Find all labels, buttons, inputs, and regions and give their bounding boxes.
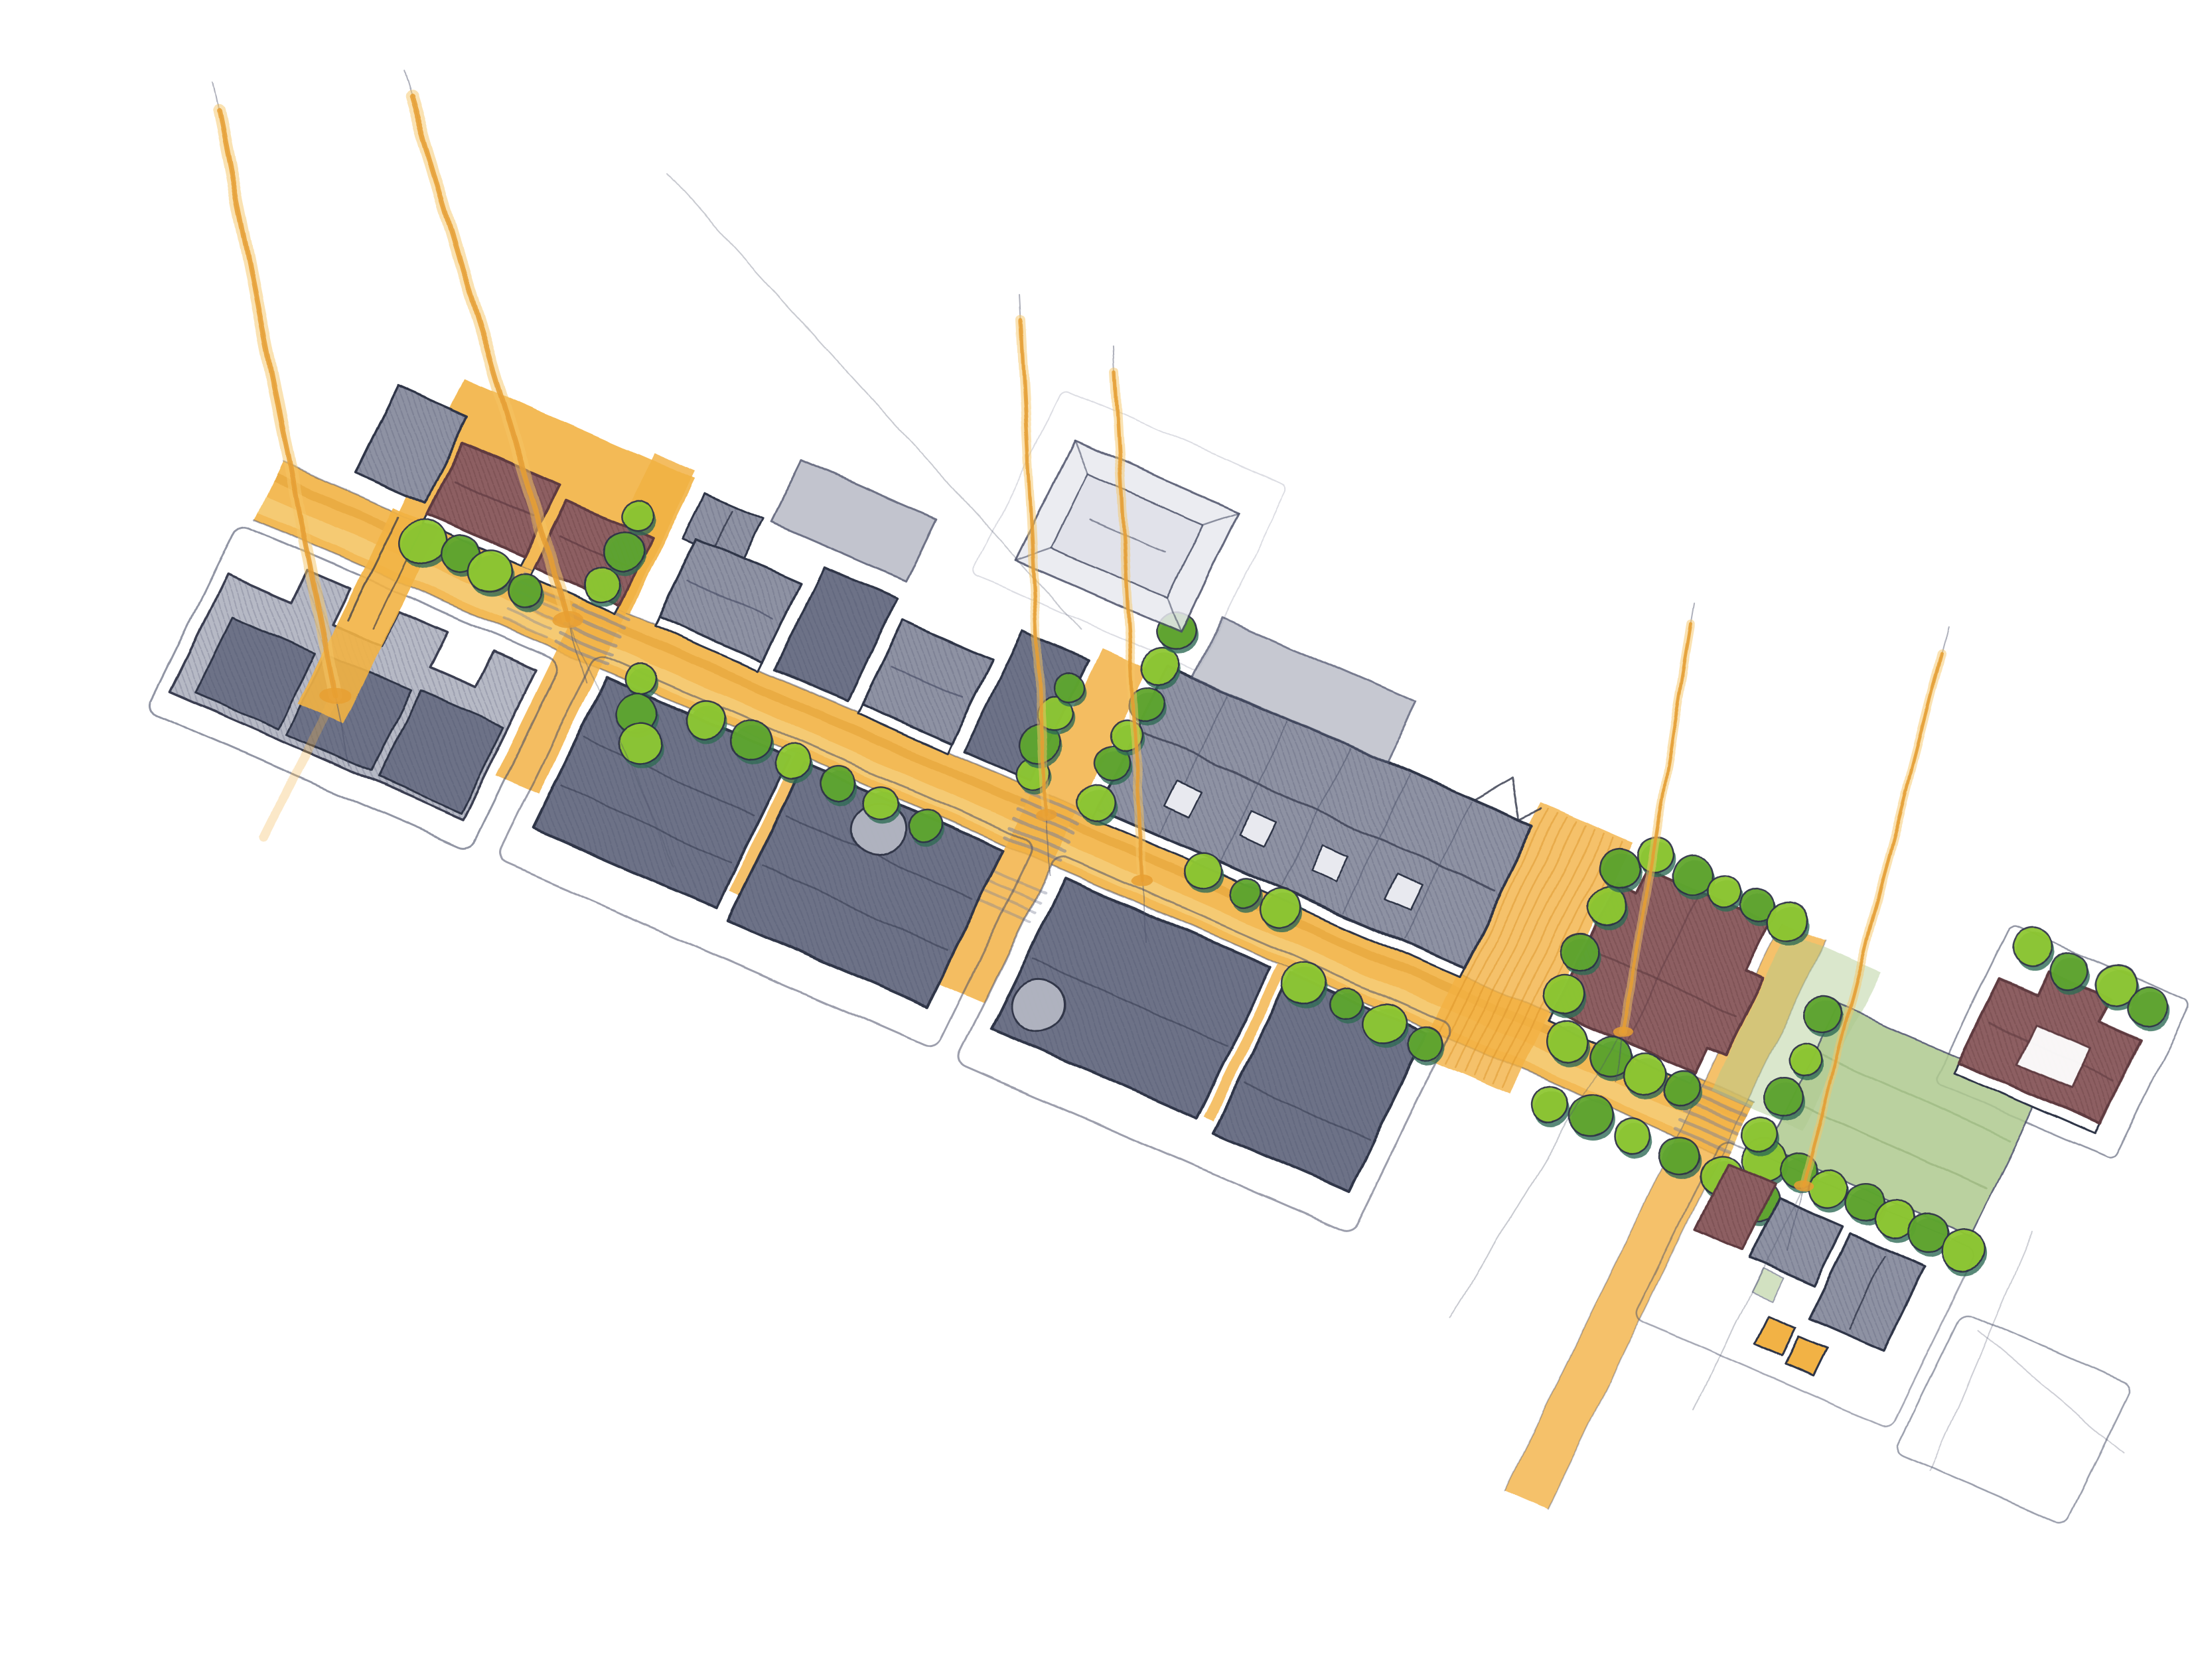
beacon-ground-spot — [552, 611, 584, 628]
sketch-page — [0, 0, 2190, 1680]
beacon-ground-spot — [1035, 810, 1058, 822]
beacon-ground-spot — [320, 687, 352, 703]
sketch-canvas — [0, 0, 2190, 1680]
beacon-ground-spot — [1613, 1027, 1634, 1038]
beacon-ground-spot — [1794, 1181, 1814, 1192]
beacon-ground-spot — [1131, 875, 1154, 887]
